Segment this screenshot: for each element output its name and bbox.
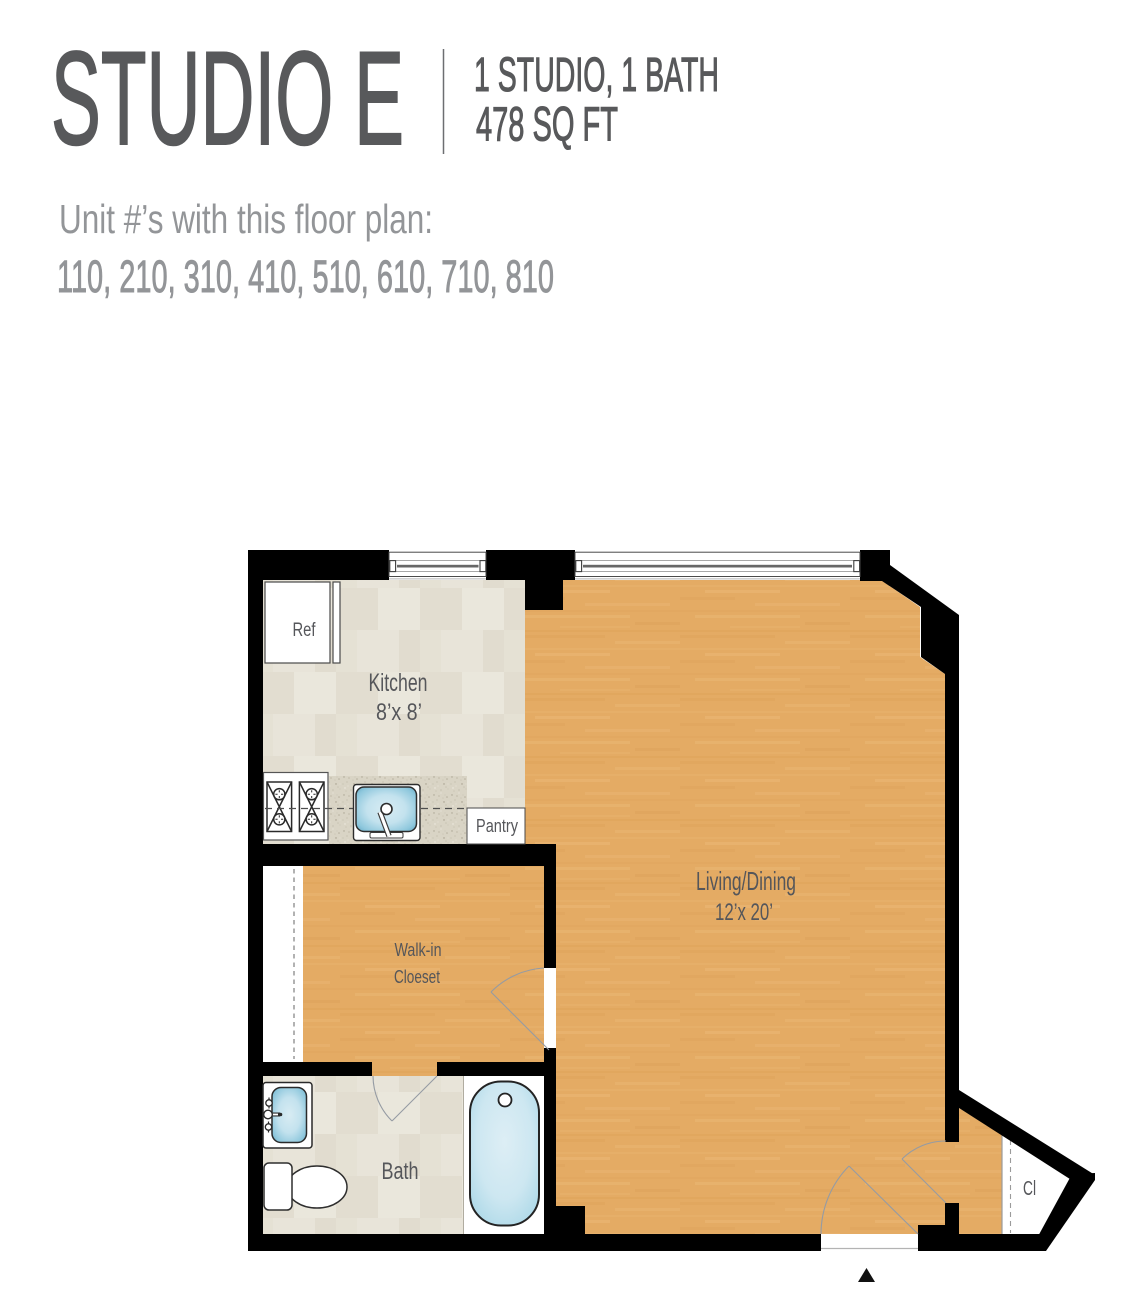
svg-text:478 SQ FT: 478 SQ FT bbox=[476, 99, 618, 152]
svg-text:Walk-in: Walk-in bbox=[395, 940, 442, 960]
svg-text:Bath: Bath bbox=[382, 1158, 419, 1185]
svg-text:Cloeset: Cloeset bbox=[394, 967, 440, 987]
svg-text:Cl: Cl bbox=[1023, 1178, 1036, 1200]
svg-text:110, 210, 310, 410, 510, 610,: 110, 210, 310, 410, 510, 610, 710, 810 bbox=[57, 251, 554, 302]
svg-text:1 STUDIO, 1 BATH: 1 STUDIO, 1 BATH bbox=[474, 49, 719, 102]
svg-text:STUDIO E: STUDIO E bbox=[51, 25, 404, 173]
svg-text:8’x 8’: 8’x 8’ bbox=[376, 699, 422, 726]
svg-text:Pantry: Pantry bbox=[476, 816, 518, 836]
svg-text:Kitchen: Kitchen bbox=[369, 669, 428, 697]
svg-text:Unit #’s with this floor plan:: Unit #’s with this floor plan: bbox=[59, 196, 433, 242]
svg-text:12’x 20’: 12’x 20’ bbox=[715, 899, 773, 926]
svg-text:Living/Dining: Living/Dining bbox=[696, 866, 796, 896]
svg-text:Ref: Ref bbox=[293, 620, 317, 641]
